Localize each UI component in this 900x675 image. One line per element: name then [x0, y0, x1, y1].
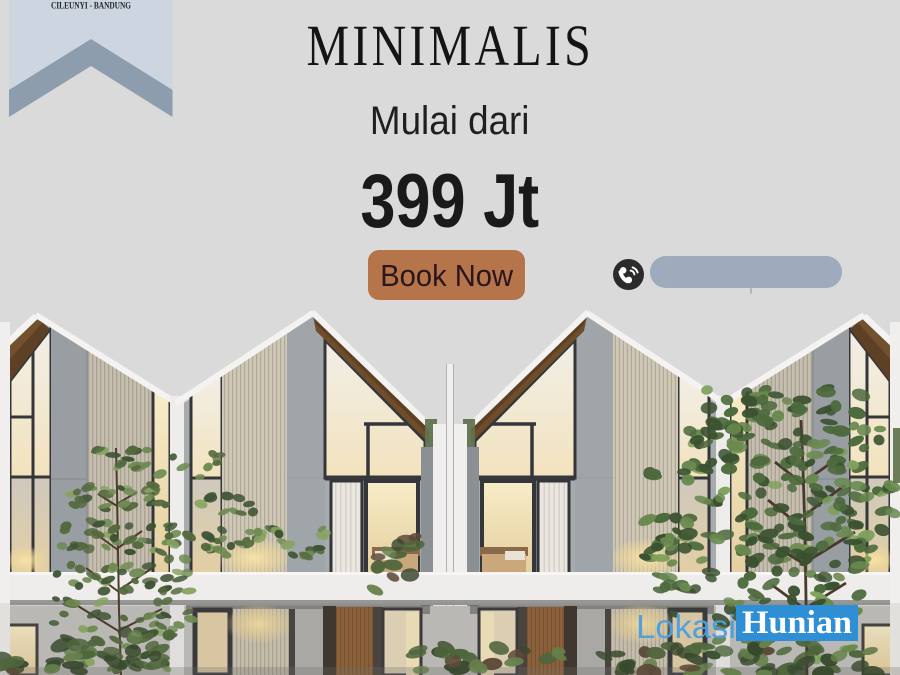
svg-text:CILEUNYI - BANDUNG: CILEUNYI - BANDUNG [51, 2, 131, 12]
svg-text:Hunian: Hunian [742, 605, 852, 641]
svg-text:Lokasi: Lokasi [636, 608, 736, 645]
